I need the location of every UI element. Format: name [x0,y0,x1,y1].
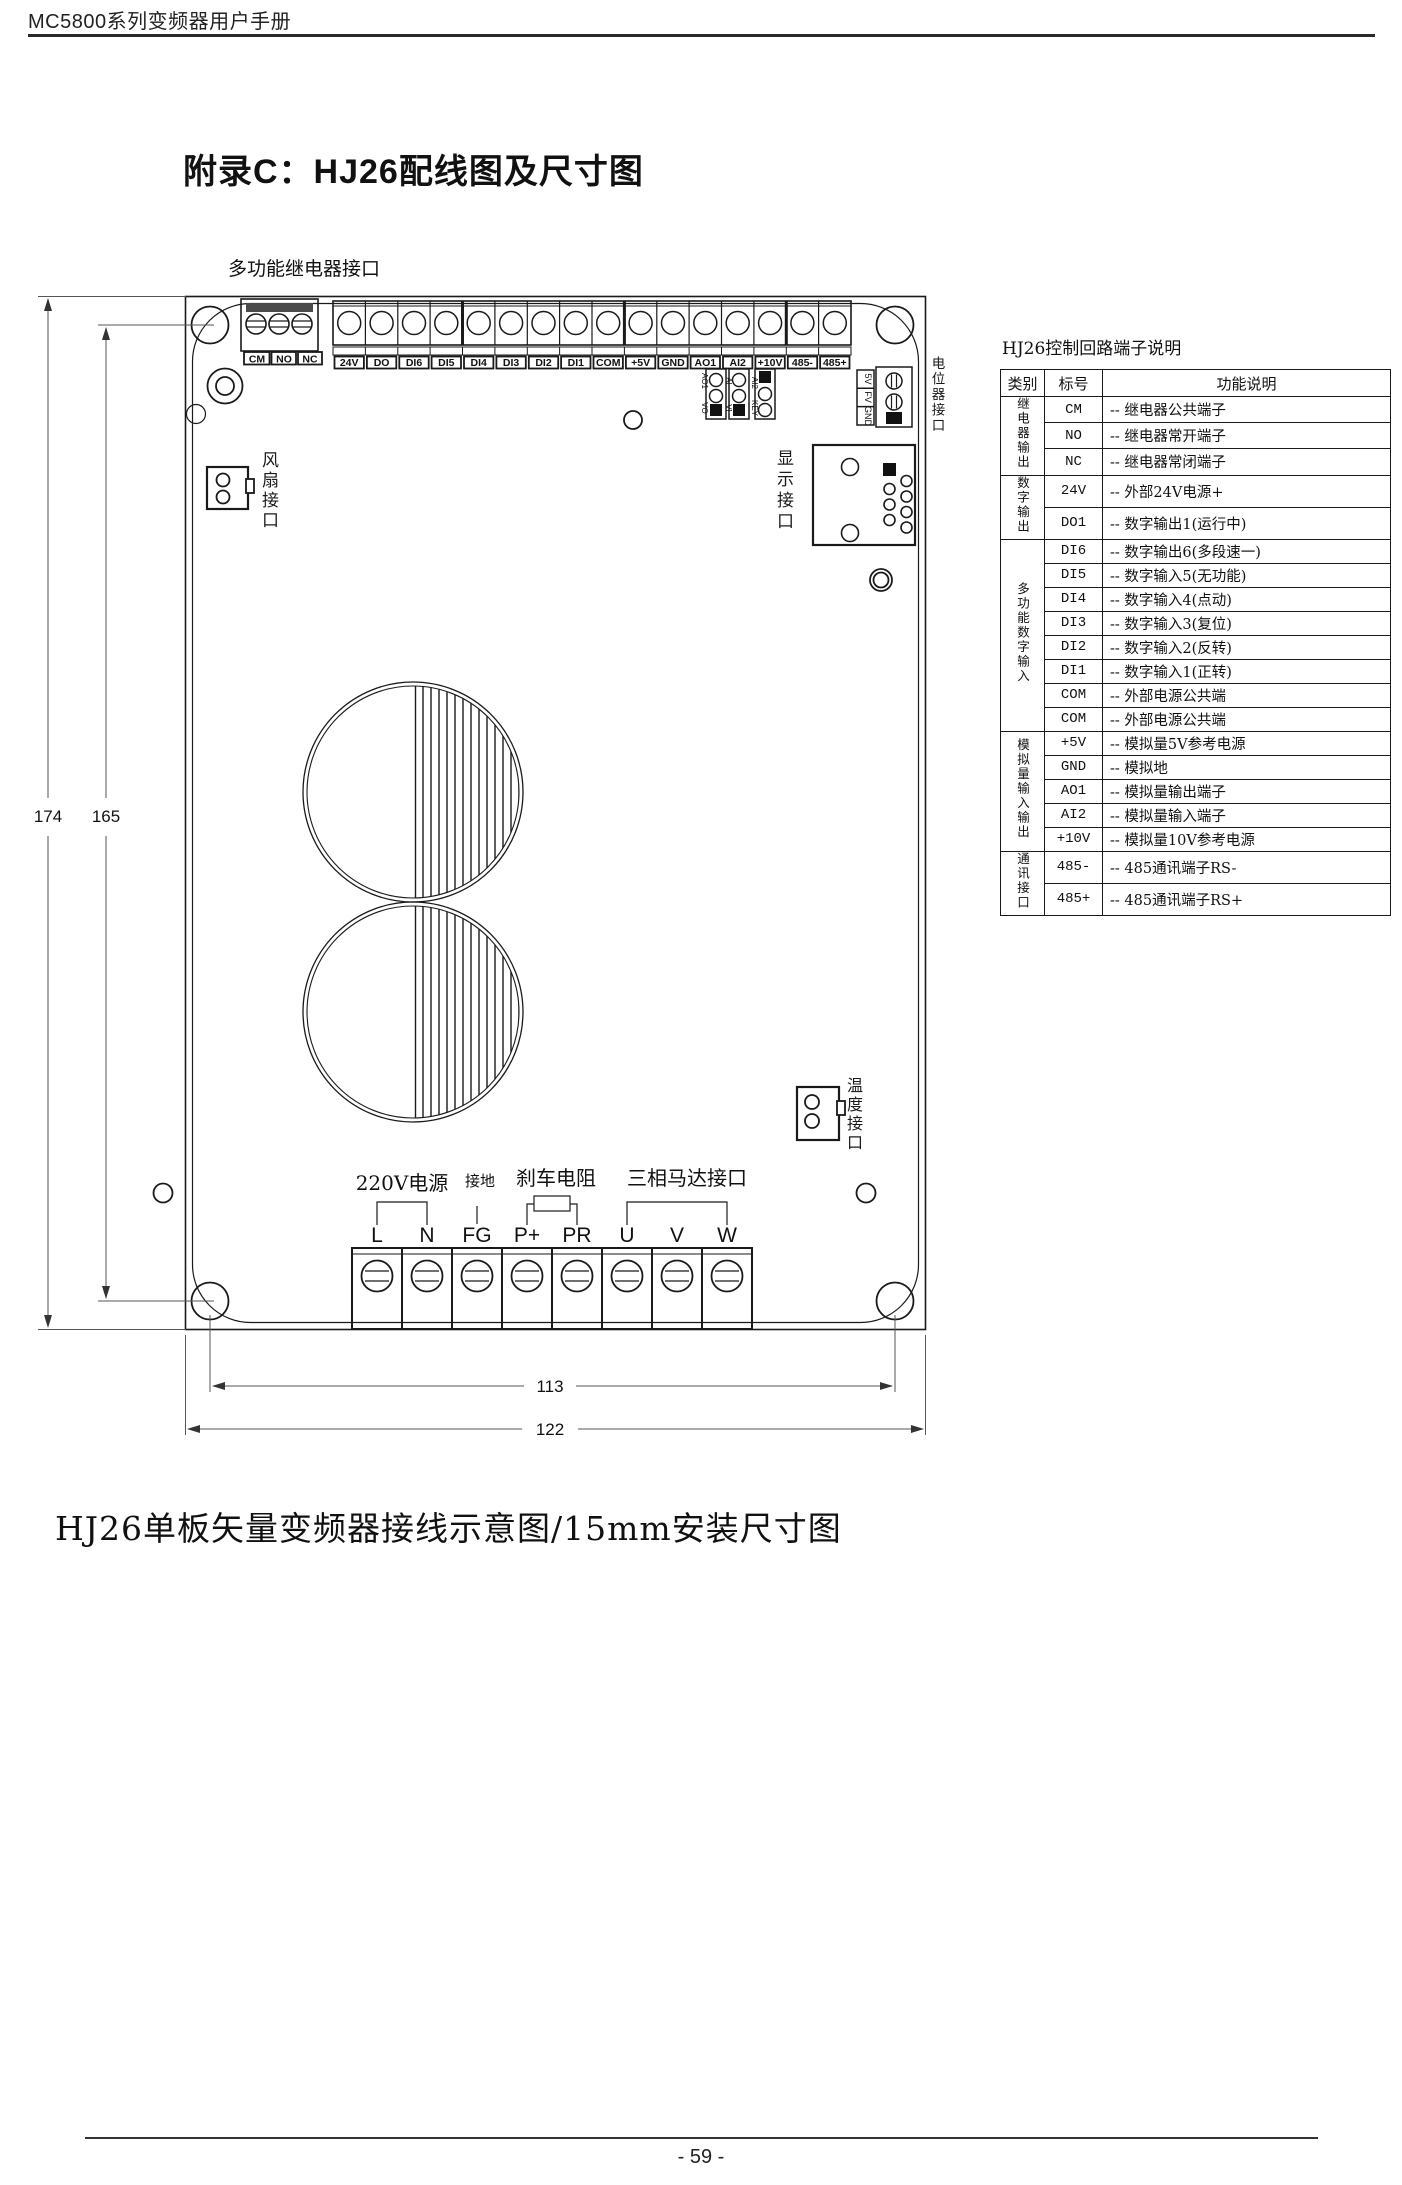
col-header-function: 功能说明 [1103,370,1391,397]
terminal-function: -- 数字输入2(反转) [1103,635,1391,659]
terminal-table-title: HJ26控制回路端子说明 [1002,334,1400,359]
terminal-function: -- 模拟量输出端子 [1103,779,1391,803]
table-row: 通讯接口 485- -- 485通讯端子RS- [1001,851,1391,883]
terminal-label: COM [596,357,621,369]
terminal-label: DI3 [503,357,520,369]
terminal-code: AO1 [1045,779,1103,803]
pot-port-label: 电位器接口 [929,356,943,434]
terminal-code: +5V [1045,731,1103,755]
terminal-function: -- 模拟地 [1103,755,1391,779]
terminal-table: 类别 标号 功能说明 继电器输出 CM -- 继电器公共端子 NO-- 继电器常… [1000,369,1391,916]
terminal-label: P+ [514,1224,540,1247]
terminal-code: DO1 [1045,507,1103,539]
table-row: DI5-- 数字输入5(无功能) [1001,563,1391,587]
relay-port-label: 多功能继电器接口 [228,258,380,280]
category-digital-output: 数字输出 [1013,476,1032,534]
brake-group-label: 刹车电阻 [516,1166,596,1190]
terminal-code: +10V [1045,827,1103,851]
figure-caption: HJ26单板矢量变频器接线示意图/15mm安装尺寸图 [55,1502,842,1550]
table-row: COM-- 外部电源公共端 [1001,683,1391,707]
table-row: NC-- 继电器常闭端子 [1001,449,1391,475]
ground-group-label: 接地 [465,1172,495,1190]
terminal-code: DI3 [1045,611,1103,635]
footer-rule [85,2137,1318,2139]
table-row: COM-- 外部电源公共端 [1001,707,1391,731]
jumper-label-ai: AI [724,377,733,385]
terminal-label: W [717,1224,737,1247]
terminal-code: DI4 [1045,587,1103,611]
manual-page: MC5800系列变频器用户手册 附录C：HJ26配线图及尺寸图 多功能继电器接口 [0,0,1402,2185]
terminal-label: +10V [758,357,783,369]
terminal-code: 485+ [1045,883,1103,915]
relay-terminal-nc: NC [302,354,318,366]
fan-port-label: 风扇接口 [259,451,276,531]
relay-terminal-no: NO [276,354,292,366]
terminal-label: FG [462,1224,491,1247]
terminal-label: DI6 [406,357,423,369]
table-row: AI2-- 模拟量输入端子 [1001,803,1391,827]
display-port-label: 显示接口 [774,449,791,533]
bottom-terminal-strip [352,1248,752,1329]
terminal-label: +5V [631,357,650,369]
terminal-function: -- 继电器常闭端子 [1103,449,1391,475]
terminal-label: DI1 [568,357,585,369]
terminal-label: PR [562,1224,591,1247]
terminal-function: -- 继电器公共端子 [1103,397,1391,423]
bottom-terminal-labels: L N FG P+ PR U V W [371,1224,737,1247]
terminal-code: COM [1045,707,1103,731]
terminal-label: AI2 [730,357,747,369]
relay-terminal-cm: CM [249,354,266,366]
terminal-function: -- 485通讯端子RS- [1103,851,1391,883]
col-header-category: 类别 [1001,370,1045,397]
terminal-label: 485+ [823,357,847,369]
table-row: NO-- 继电器常开端子 [1001,423,1391,449]
col-header-code: 标号 [1045,370,1103,397]
terminal-function: -- 数字输出6(多段速一) [1103,539,1391,563]
capacitor-circles [303,680,523,1125]
terminal-function: -- 数字输入3(复位) [1103,611,1391,635]
terminal-label: DI4 [471,357,488,369]
table-row: DO1-- 数字输出1(运行中) [1001,507,1391,539]
terminal-code: 24V [1045,475,1103,507]
motor-group-label: 三相马达接口 [627,1166,747,1190]
table-row: 485+-- 485通讯端子RS+ [1001,883,1391,915]
terminal-label: DO [374,357,390,369]
table-row: DI2-- 数字输入2(反转) [1001,635,1391,659]
dim-width-outer: 122 [536,1420,564,1439]
power-group-label: 220V电源 [356,1171,449,1195]
category-digital-input: 多功能数字输入 [1013,582,1032,684]
terminal-function: -- 外部24V电源+ [1103,475,1391,507]
jumper-label-ai2: AI2 [750,377,759,390]
temperature-connector [797,1087,845,1140]
fan-connector [207,467,254,509]
table-row: +10V-- 模拟量10V参考电源 [1001,827,1391,851]
terminal-function: -- 模拟量输入端子 [1103,803,1391,827]
terminal-table-section: HJ26控制回路端子说明 类别 标号 功能说明 继电器输出 CM -- 继电器公… [1000,334,1400,916]
group-brackets [377,1196,727,1225]
table-row: DI4-- 数字输入4(点动) [1001,587,1391,611]
terminal-function: -- 485通讯端子RS+ [1103,883,1391,915]
table-row: 数字输出 24V -- 外部24V电源+ [1001,475,1391,507]
terminal-function: -- 数字输入1(正转) [1103,659,1391,683]
jumper-label-key: KEY [750,400,759,417]
dim-width-inner: 113 [536,1377,563,1396]
terminal-label: V [670,1224,684,1247]
table-row: 继电器输出 CM -- 继电器公共端子 [1001,397,1391,423]
pot-pin-fv: FV [863,391,873,403]
table-row: 模拟量输入输出 +5V -- 模拟量5V参考电源 [1001,731,1391,755]
wiring-diagram: 多功能继电器接口 CM NO NC [0,0,1000,1500]
terminal-label: DI5 [438,357,455,369]
dim-height-outer: 174 [34,807,62,826]
terminal-label: 485- [792,357,814,369]
pot-pin-5v: 5V [863,373,873,384]
terminal-label: N [419,1224,434,1247]
jumper-label-vi: VI [724,404,733,412]
page-number: - 59 - [0,2146,1402,2169]
terminal-label: U [619,1224,634,1247]
display-connector [813,445,915,545]
terminal-code: DI5 [1045,563,1103,587]
terminal-code: NO [1045,423,1103,449]
terminal-label: 24V [340,357,359,369]
terminal-function: -- 外部电源公共端 [1103,707,1391,731]
table-header-row: 类别 标号 功能说明 [1001,370,1391,397]
terminal-code: GND [1045,755,1103,779]
table-row: GND-- 模拟地 [1001,755,1391,779]
terminal-function: -- 数字输入5(无功能) [1103,563,1391,587]
category-comm-port: 通讯接口 [1013,852,1032,910]
pot-pin-gnd: GND [863,406,873,427]
terminal-function: -- 数字输入4(点动) [1103,587,1391,611]
terminal-label: L [371,1224,383,1247]
terminal-code: 485- [1045,851,1103,883]
jumper-label-ao1: AO1 [700,373,709,390]
table-row: 多功能数字输入 DI6 -- 数字输出6(多段速一) [1001,539,1391,563]
temp-port-label: 温度接口 [845,1077,861,1153]
category-relay-output: 继电器输出 [1013,397,1032,470]
terminal-code: AI2 [1045,803,1103,827]
terminal-function: -- 模拟量5V参考电源 [1103,731,1391,755]
terminal-code: NC [1045,449,1103,475]
terminal-function: -- 模拟量10V参考电源 [1103,827,1391,851]
category-analog-io: 模拟量输入输出 [1013,738,1032,840]
terminal-code: COM [1045,683,1103,707]
terminal-function: -- 继电器常开端子 [1103,423,1391,449]
dim-height-inner: 165 [92,807,120,826]
jumper-label-vo: VO [700,402,709,414]
table-row: DI3-- 数字输入3(复位) [1001,611,1391,635]
terminal-code: DI1 [1045,659,1103,683]
terminal-code: CM [1045,397,1103,423]
table-row: DI1-- 数字输入1(正转) [1001,659,1391,683]
terminal-code: DI2 [1045,635,1103,659]
terminal-label: DI2 [535,357,552,369]
terminal-function: -- 外部电源公共端 [1103,683,1391,707]
terminal-function: -- 数字输出1(运行中) [1103,507,1391,539]
terminal-label: AO1 [695,357,717,369]
jumper-blocks [706,369,775,419]
terminal-label: GND [661,357,685,369]
table-row: AO1-- 模拟量输出端子 [1001,779,1391,803]
terminal-code: DI6 [1045,539,1103,563]
